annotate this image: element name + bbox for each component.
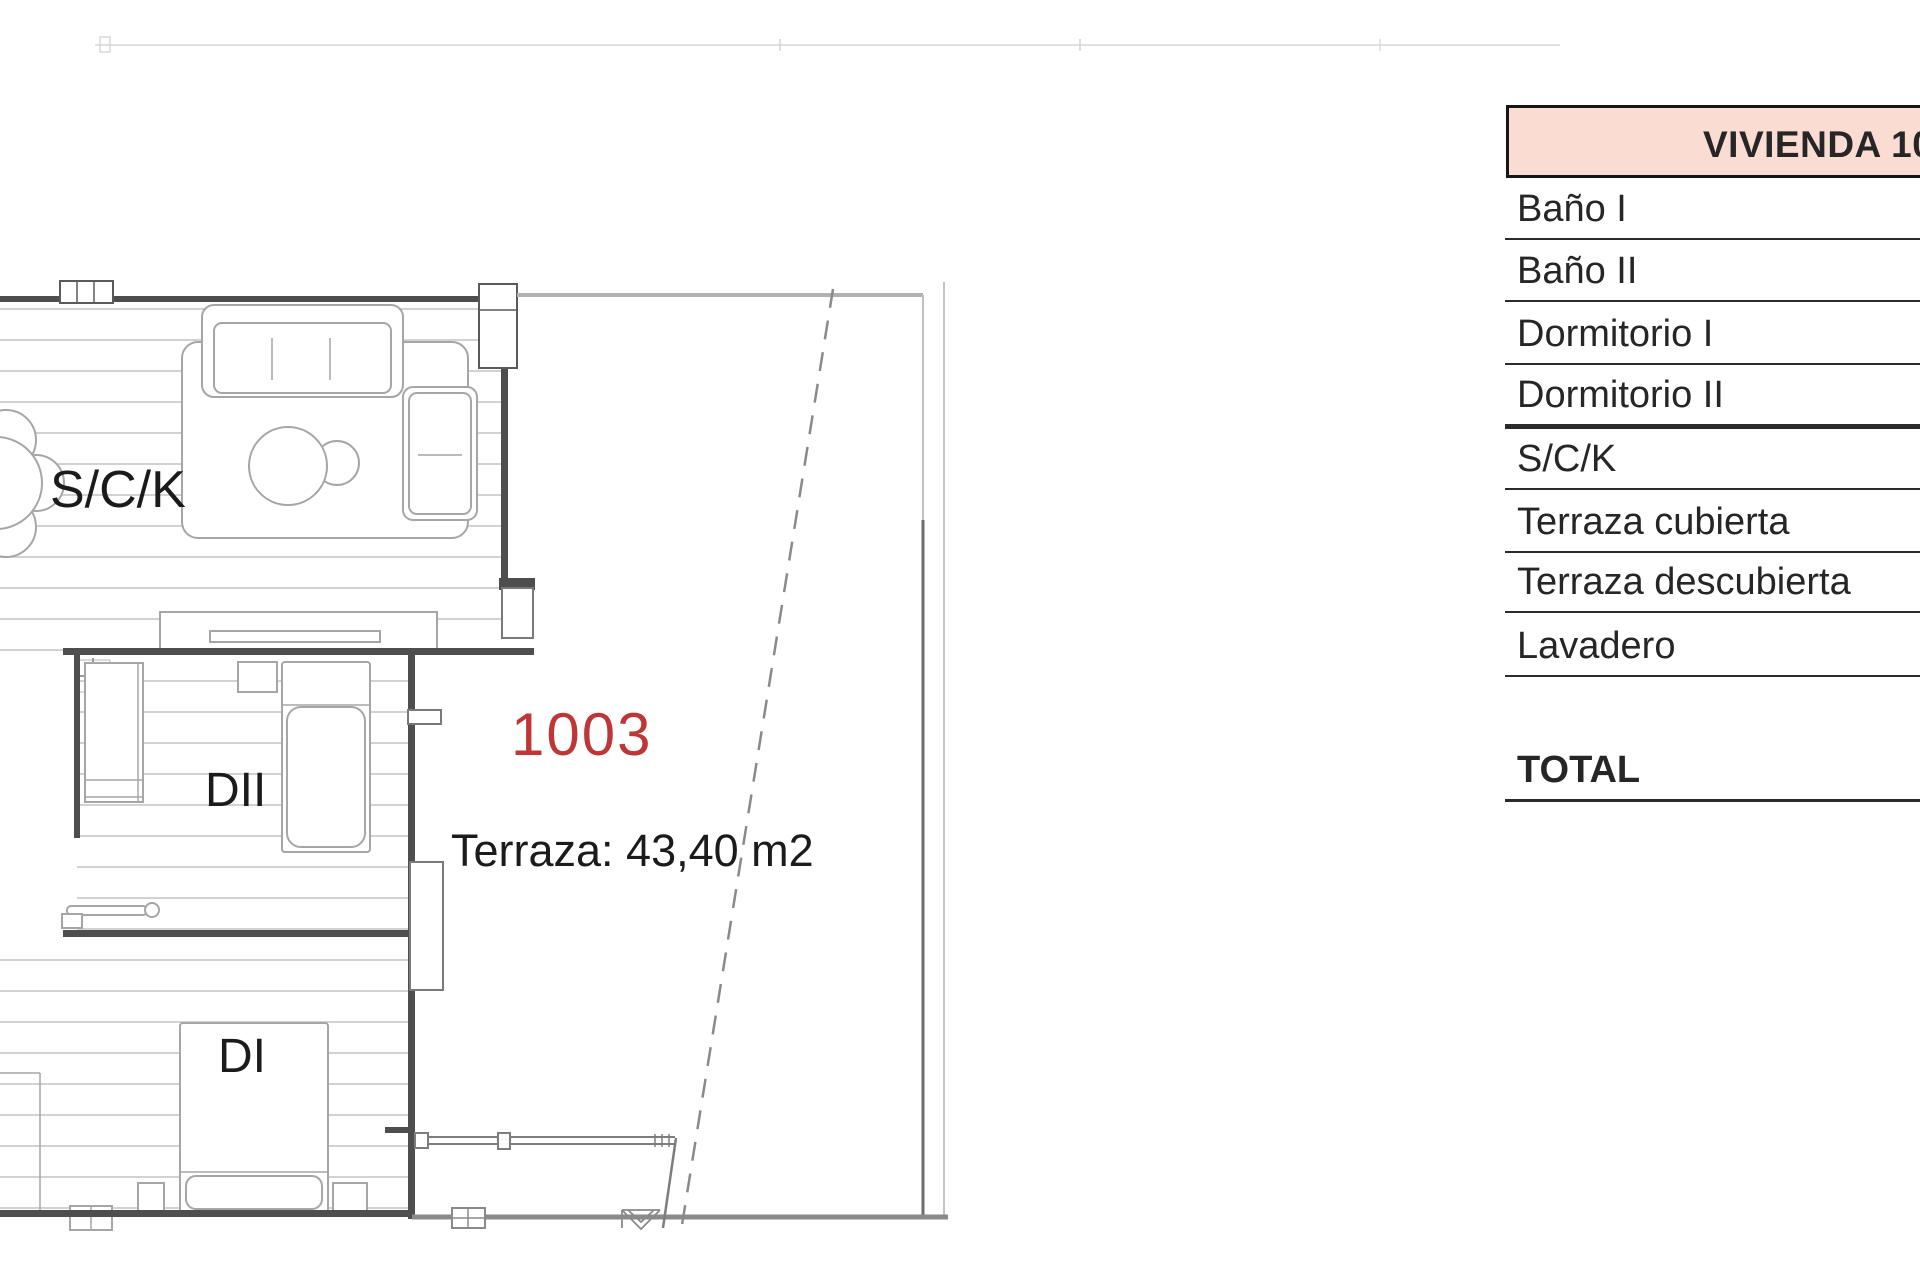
unit-number-label: 1003 — [511, 701, 652, 768]
pillar-step — [502, 588, 533, 638]
row-label: Terraza cubierta — [1517, 501, 1789, 544]
label-living-room: S/C/K — [50, 461, 186, 519]
label-bedroom1: DI — [218, 1030, 266, 1083]
table-row: Terraza descubierta — [1505, 559, 1920, 613]
row-label: Baño II — [1517, 250, 1637, 293]
row-label: Baño I — [1517, 188, 1627, 231]
wall-bottom — [0, 1210, 415, 1217]
dashed-boundary — [681, 289, 833, 1231]
armchair — [403, 387, 477, 520]
wall-sck-dii — [63, 648, 534, 655]
drain-box — [452, 1208, 485, 1228]
row-label: Dormitorio I — [1517, 313, 1713, 356]
wall-dii-di — [63, 930, 413, 937]
table-header-label: VIVIENDA 10 — [1703, 124, 1920, 166]
table-row: Lavadero — [1505, 623, 1920, 677]
table-row: Baño I — [1505, 186, 1920, 240]
nightstand-right — [333, 1183, 367, 1213]
table-row: Dormitorio II — [1505, 373, 1920, 429]
sideboard — [160, 612, 437, 650]
label-bedroom2: DII — [205, 764, 266, 817]
nightstand-left — [138, 1183, 164, 1213]
table-row: S/C/K — [1505, 436, 1920, 490]
row-label: Dormitorio II — [1517, 374, 1724, 417]
table-total-row: TOTAL — [1505, 744, 1920, 802]
terrace-area-label: Terraza: 43,40 m2 — [451, 825, 814, 876]
window-marker — [70, 1206, 112, 1230]
pillar-top-mid — [479, 284, 517, 368]
pillar-nib-terrace — [408, 710, 441, 724]
sofa-back — [202, 305, 403, 397]
screenshot-canvas: S/C/K DII DI 1003 Terraza: 43,40 m2 VIVI… — [0, 0, 1920, 1280]
table-header-cell: VIVIENDA 10 — [1506, 105, 1920, 178]
row-label: Lavadero — [1517, 625, 1675, 668]
wall-nib — [385, 1127, 415, 1133]
pillar-top-left — [60, 281, 113, 303]
pillar-terrace-mid — [410, 862, 443, 990]
nightstand — [238, 662, 277, 692]
site-top-line — [95, 37, 1560, 52]
wardrobe — [85, 663, 143, 802]
coffee-table — [249, 427, 327, 505]
table-row: Dormitorio I — [1505, 311, 1920, 365]
row-label: S/C/K — [1517, 438, 1616, 481]
bed-dii — [282, 662, 370, 852]
total-label: TOTAL — [1517, 749, 1640, 792]
wall-dii-left — [74, 655, 80, 838]
table-row: Baño II — [1505, 248, 1920, 302]
table-row: Terraza cubierta — [1505, 499, 1920, 553]
row-label: Terraza descubierta — [1517, 561, 1851, 604]
